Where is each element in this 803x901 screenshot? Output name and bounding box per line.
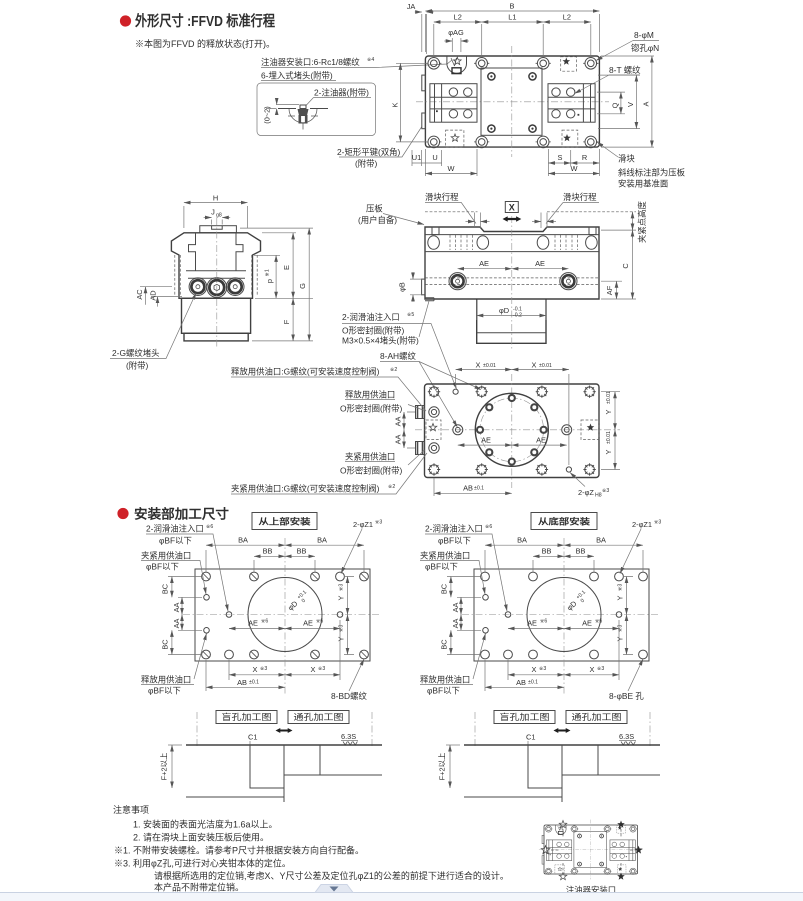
svg-text:※6: ※6 bbox=[206, 524, 213, 530]
svg-text:6.3S: 6.3S bbox=[341, 732, 356, 741]
svg-text:8-AH螺纹: 8-AH螺纹 bbox=[380, 351, 416, 361]
svg-text:Y: Y bbox=[604, 449, 613, 454]
svg-text:释放用供油口:G螺纹(可安装速度控制阀): 释放用供油口:G螺纹(可安装速度控制阀) bbox=[231, 367, 380, 377]
svg-text:AD: AD bbox=[149, 290, 158, 300]
svg-text:※3: ※3 bbox=[339, 584, 345, 591]
svg-text:通孔加工图: 通孔加工图 bbox=[294, 712, 344, 722]
svg-text:(用户自备): (用户自备) bbox=[358, 215, 397, 225]
svg-text:BB: BB bbox=[263, 547, 273, 556]
svg-text:X: X bbox=[532, 361, 537, 370]
svg-text:※3: ※3 bbox=[318, 666, 325, 672]
svg-text:O形密封圈(附带): O形密封圈(附带) bbox=[340, 404, 403, 414]
svg-text:※本图为FFVD 的释放状态(打开)。: ※本图为FFVD 的释放状态(打开)。 bbox=[135, 38, 275, 49]
svg-text:2-G螺纹堵头: 2-G螺纹堵头 bbox=[112, 348, 159, 358]
svg-text:夹紧用供油口: 夹紧用供油口 bbox=[345, 452, 395, 462]
svg-text:J: J bbox=[211, 208, 215, 217]
svg-text:※6: ※6 bbox=[261, 619, 268, 625]
svg-text:注意事项: 注意事项 bbox=[113, 804, 149, 815]
svg-text:X: X bbox=[253, 665, 258, 674]
svg-text:8-φM: 8-φM bbox=[634, 30, 654, 40]
svg-text:AB: AB bbox=[237, 678, 247, 687]
svg-text:K: K bbox=[391, 102, 400, 107]
svg-text:L2: L2 bbox=[563, 13, 571, 22]
svg-text:8-BD螺纹: 8-BD螺纹 bbox=[331, 691, 367, 701]
svg-text:C1: C1 bbox=[248, 733, 257, 742]
svg-text:安装部加工尺寸: 安装部加工尺寸 bbox=[134, 507, 229, 522]
svg-text:(附带): (附带) bbox=[355, 159, 378, 169]
svg-text:Y: Y bbox=[604, 409, 613, 414]
svg-text:±0.01: ±0.01 bbox=[606, 391, 612, 404]
svg-text:AA: AA bbox=[172, 619, 181, 629]
svg-text:O形密封圈(附带): O形密封圈(附带) bbox=[340, 466, 403, 476]
svg-text:W: W bbox=[571, 164, 578, 173]
svg-text:φBF以下: φBF以下 bbox=[159, 536, 192, 546]
svg-text:请根据所选用的定位销,考虑X、Y尺寸公差及定位孔φZ1的公差: 请根据所选用的定位销,考虑X、Y尺寸公差及定位孔φZ1的公差的前提下进行适合的设… bbox=[154, 870, 509, 881]
svg-text:V: V bbox=[626, 102, 635, 107]
svg-text:2-润滑油注入口: 2-润滑油注入口 bbox=[146, 524, 204, 534]
svg-text:夹紧用供油口: 夹紧用供油口 bbox=[141, 551, 191, 561]
svg-text:E: E bbox=[282, 265, 291, 270]
svg-text:※4: ※4 bbox=[367, 57, 374, 63]
svg-text:U1: U1 bbox=[412, 153, 421, 162]
svg-text:释放用供油口: 释放用供油口 bbox=[345, 390, 395, 400]
svg-text:±0.01: ±0.01 bbox=[539, 363, 552, 369]
svg-text:2-矩形平键(双角): 2-矩形平键(双角) bbox=[337, 147, 400, 157]
svg-text:※5: ※5 bbox=[407, 312, 414, 318]
svg-text:BC: BC bbox=[161, 583, 170, 594]
svg-text:O形密封圈(附带): O形密封圈(附带) bbox=[342, 326, 405, 336]
svg-text:-0.2: -0.2 bbox=[513, 313, 522, 319]
svg-text:8-φBE 孔: 8-φBE 孔 bbox=[609, 691, 644, 701]
svg-text:滑块: 滑块 bbox=[618, 154, 635, 164]
svg-text:安装用基准面: 安装用基准面 bbox=[618, 179, 668, 189]
svg-text:X: X bbox=[509, 203, 515, 213]
svg-text:±0.01: ±0.01 bbox=[483, 363, 496, 369]
svg-text:φBF以下: φBF以下 bbox=[148, 686, 181, 696]
svg-text:R: R bbox=[582, 153, 587, 162]
svg-text:C: C bbox=[621, 263, 630, 269]
svg-text:夹紧用供油口:G螺纹(可安装速度控制阀): 夹紧用供油口:G螺纹(可安装速度控制阀) bbox=[231, 484, 380, 494]
svg-text:Y: Y bbox=[337, 595, 346, 600]
svg-text:φBF以下: φBF以下 bbox=[146, 562, 179, 572]
svg-text:W: W bbox=[448, 164, 455, 173]
svg-text:H: H bbox=[213, 194, 218, 203]
svg-text:压板: 压板 bbox=[366, 204, 383, 214]
svg-text:※3. 利用φZ孔,可进行对心夹钳本体的定位。: ※3. 利用φZ孔,可进行对心夹钳本体的定位。 bbox=[114, 858, 291, 869]
svg-text:2-注油器(附带): 2-注油器(附带) bbox=[314, 88, 369, 98]
svg-text:AE: AE bbox=[535, 259, 545, 268]
svg-text:(0~2): (0~2) bbox=[263, 106, 272, 123]
svg-text:※2: ※2 bbox=[388, 484, 395, 490]
svg-text:锪孔φN: 锪孔φN bbox=[631, 43, 659, 53]
svg-text:1. 安装面的表面光洁度为1.6a以上。: 1. 安装面的表面光洁度为1.6a以上。 bbox=[133, 819, 278, 830]
svg-text:Q: Q bbox=[611, 102, 620, 108]
svg-text:外形尺寸 :FFVD 标准行程: 外形尺寸 :FFVD 标准行程 bbox=[135, 12, 275, 30]
svg-text:±0.01: ±0.01 bbox=[606, 431, 612, 444]
svg-text:AA: AA bbox=[172, 603, 181, 613]
svg-text:M3×0.5×4堵头(附带): M3×0.5×4堵头(附带) bbox=[342, 336, 419, 346]
svg-text:2-润滑油注入口: 2-润滑油注入口 bbox=[342, 312, 400, 322]
svg-text:φAG: φAG bbox=[448, 28, 464, 37]
svg-text:AE: AE bbox=[481, 436, 491, 445]
svg-text:※3: ※3 bbox=[375, 520, 382, 526]
svg-text:BA: BA bbox=[238, 536, 248, 545]
svg-text:从底部安装: 从底部安装 bbox=[538, 517, 591, 527]
svg-text:※1: ※1 bbox=[265, 269, 271, 276]
svg-text:φB: φB bbox=[398, 282, 407, 292]
svg-text:X: X bbox=[311, 665, 316, 674]
svg-text:滑块行程: 滑块行程 bbox=[425, 192, 459, 202]
svg-text:释放用供油口: 释放用供油口 bbox=[141, 675, 191, 685]
svg-text:±0.1: ±0.1 bbox=[249, 680, 259, 686]
svg-text:8-T 螺纹: 8-T 螺纹 bbox=[609, 65, 641, 75]
svg-text:AB: AB bbox=[463, 484, 473, 493]
svg-text:AE: AE bbox=[479, 259, 489, 268]
svg-text:p: p bbox=[265, 279, 274, 283]
svg-text:F: F bbox=[282, 319, 291, 324]
svg-text:U: U bbox=[432, 153, 437, 162]
svg-text:A: A bbox=[642, 101, 651, 106]
svg-text:斜线标注部为压板: 斜线标注部为压板 bbox=[618, 168, 686, 178]
svg-text:G: G bbox=[298, 283, 307, 289]
svg-text:AE: AE bbox=[536, 436, 546, 445]
svg-text:滑块行程: 滑块行程 bbox=[563, 192, 597, 202]
svg-text:H8: H8 bbox=[595, 493, 602, 499]
svg-text:X: X bbox=[476, 361, 481, 370]
svg-text:夹紧点高度: 夹紧点高度 bbox=[637, 200, 647, 242]
svg-text:盲孔加工图: 盲孔加工图 bbox=[222, 712, 272, 722]
svg-text:±0.1: ±0.1 bbox=[474, 486, 484, 492]
svg-text:AF: AF bbox=[605, 285, 614, 295]
svg-text:AA: AA bbox=[394, 417, 403, 427]
svg-text:BA: BA bbox=[317, 536, 327, 545]
svg-text:L1: L1 bbox=[508, 13, 516, 22]
svg-text:AE: AE bbox=[303, 619, 313, 628]
svg-text:2. 请在滑块上面安装压板后使用。: 2. 请在滑块上面安装压板后使用。 bbox=[133, 832, 269, 843]
svg-text:BC: BC bbox=[161, 639, 170, 650]
svg-text:※1. 不附带安装螺栓。请参考P尺寸并根据安装方向自行配备: ※1. 不附带安装螺栓。请参考P尺寸并根据安装方向自行配备。 bbox=[114, 845, 364, 856]
svg-text:6-埋入式堵头(附带): 6-埋入式堵头(附带) bbox=[261, 71, 333, 81]
svg-text:2-φZ1: 2-φZ1 bbox=[353, 520, 373, 529]
svg-text:Y: Y bbox=[337, 636, 346, 641]
svg-text:S: S bbox=[558, 153, 563, 162]
svg-text:BB: BB bbox=[297, 547, 307, 556]
svg-text:JA: JA bbox=[407, 2, 416, 11]
svg-text:本产品不附带定位销。: 本产品不附带定位销。 bbox=[154, 882, 244, 893]
svg-text:※6: ※6 bbox=[316, 619, 323, 625]
svg-text:※3: ※3 bbox=[260, 666, 267, 672]
svg-text:※2: ※2 bbox=[390, 367, 397, 373]
svg-text:从上部安装: 从上部安装 bbox=[259, 517, 312, 527]
svg-text:F+2以上: F+2以上 bbox=[160, 752, 169, 780]
svg-text:(附带): (附带) bbox=[126, 361, 149, 371]
svg-text:AA: AA bbox=[394, 435, 403, 445]
svg-text:AE: AE bbox=[248, 619, 258, 628]
svg-text:2-φZ: 2-φZ bbox=[578, 488, 594, 497]
svg-text:※3: ※3 bbox=[602, 488, 609, 494]
svg-text:g8: g8 bbox=[216, 213, 222, 219]
svg-text:φD: φD bbox=[499, 306, 509, 315]
svg-text:AC: AC bbox=[135, 289, 144, 300]
svg-text:L2: L2 bbox=[454, 13, 462, 22]
svg-text:注油器安装口:6-Rc1/8螺纹: 注油器安装口:6-Rc1/8螺纹 bbox=[261, 57, 360, 67]
svg-text:B: B bbox=[510, 2, 515, 11]
